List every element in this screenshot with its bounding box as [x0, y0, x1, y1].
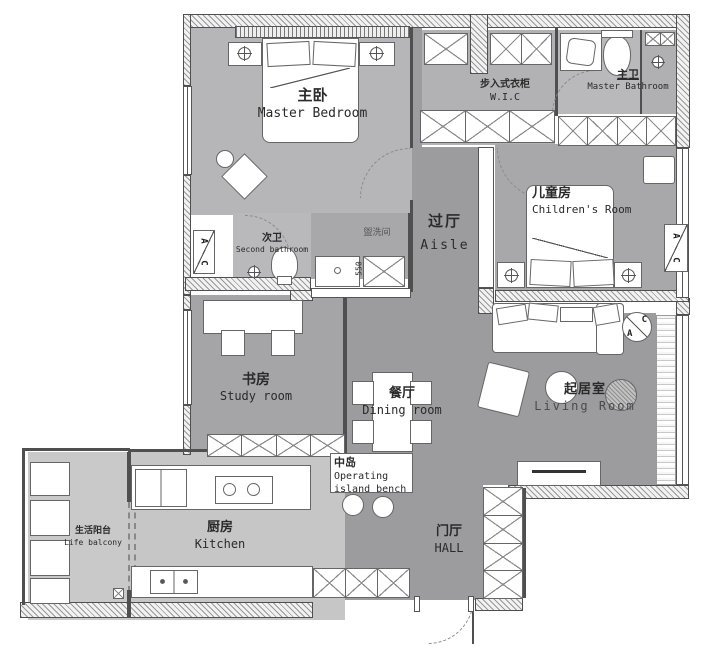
- aisle-label: 过厅 Aisle: [412, 212, 478, 254]
- shower-head-icon: [248, 266, 260, 278]
- hall-label: 门厅 HALL: [424, 524, 474, 556]
- bedroom-side-table: [216, 150, 234, 168]
- wall-shoecab-right: [523, 488, 526, 598]
- wall-childrens-left: [478, 147, 494, 288]
- kitchen-cabinet-bottom-right: [313, 568, 410, 598]
- study-room-label: 书房 Study room: [210, 371, 302, 405]
- burner-right: [247, 483, 260, 496]
- mbath-toilet-tank: [601, 30, 633, 38]
- master-bed-pillow-right: [312, 41, 356, 67]
- master-bed-blanket-fold: [270, 68, 350, 88]
- tv-screen: [532, 470, 586, 473]
- living-room-label: 起居室 Living Room: [530, 382, 640, 414]
- wall-bedroom-right-a: [410, 28, 413, 148]
- wic-cabinet-bottom: [420, 110, 555, 143]
- study-desk: [203, 300, 303, 334]
- childrens-wardrobe: [558, 116, 676, 146]
- wic-cabinet-top-right: [490, 33, 552, 65]
- wic-cabinet-top-left: [424, 33, 468, 65]
- mbath-shower-head-icon: [652, 56, 664, 68]
- island-stool-right: [372, 496, 394, 518]
- wall-living-bottom: [508, 485, 689, 499]
- ac-unit-right: A C: [664, 224, 688, 272]
- second-bath-toilet-tank: [277, 276, 292, 285]
- childrens-lamp-left-icon: [505, 269, 518, 282]
- wall-hall-bottom-right: [475, 598, 523, 611]
- mbath-sink-bowl: [565, 37, 596, 67]
- childrens-desk: [643, 156, 675, 184]
- floor-plan: 550 A C A C: [0, 0, 728, 672]
- sofa-pillow-3: [560, 307, 593, 322]
- study-cabinet: [207, 434, 345, 457]
- master-bathroom-label: 主卫 Master Bathroom: [572, 68, 684, 94]
- wic-label: 步入式衣柜 W.I.C: [440, 78, 570, 104]
- childrens-bed-blanket-fold: [532, 238, 608, 258]
- sofa-pillow-2: [527, 302, 559, 322]
- window-childrens-right: [676, 148, 689, 298]
- wall-balcony-left: [22, 450, 25, 605]
- washroom-cabinet: [363, 256, 405, 287]
- wall-washroom-right: [408, 213, 411, 292]
- dining-room-label: 餐厅 Dining room: [352, 386, 452, 418]
- entrance-post-right: [468, 596, 474, 612]
- island-label: 中岛 Operating island bench: [334, 456, 414, 496]
- wall-left-top: [183, 14, 191, 86]
- bedroom-blind: [235, 26, 410, 38]
- washbasin-drain: [334, 267, 341, 274]
- sink-drain-left: [160, 579, 165, 584]
- washer-3: [30, 578, 70, 604]
- wall-wic-column: [470, 14, 488, 74]
- childrens-pillow-left: [529, 259, 571, 287]
- entrance-post-left: [414, 596, 420, 612]
- burner-left: [223, 483, 236, 496]
- mbath-shelf: [645, 32, 675, 46]
- floor-drain: [113, 588, 124, 599]
- kitchen-label: 厨房 Kitchen: [178, 520, 262, 552]
- kitchen-sink: [150, 570, 198, 594]
- lamp-left-icon: [238, 47, 251, 60]
- wall-left-study-bot: [183, 405, 191, 455]
- wall-bottom-left: [20, 602, 313, 618]
- shoe-cabinet: [483, 487, 523, 599]
- study-chair-right: [271, 330, 295, 356]
- childrens-room-label: 儿童房 Children's Room: [532, 186, 650, 217]
- life-balcony-label: 生活阳台 Life balcony: [56, 526, 130, 548]
- dim-550: 550: [355, 261, 364, 275]
- washroom-label: 盥洗间: [350, 228, 404, 240]
- lamp-right-icon: [370, 47, 383, 60]
- childrens-pillow-right: [572, 259, 614, 287]
- tv-bench: [517, 461, 601, 486]
- island-stool-left: [342, 494, 364, 516]
- living-curtain: [656, 315, 676, 485]
- master-bedroom-label: 主卧 Master Bedroom: [240, 86, 385, 122]
- wall-child-living: [495, 290, 689, 302]
- window-living-right: [676, 315, 689, 485]
- wall-left-study-top: [183, 295, 191, 310]
- fridge: [135, 469, 187, 507]
- wall-balcony-top: [22, 448, 130, 451]
- window-study-left: [183, 310, 192, 405]
- dining-chair-bl: [352, 420, 374, 444]
- ac-unit-left: A C: [193, 230, 215, 274]
- second-bathroom-label: 次卫 Second bathroom: [228, 232, 316, 255]
- window-bedroom-left: [183, 86, 192, 175]
- study-chair-left: [221, 330, 245, 356]
- childrens-lamp-right-icon: [622, 269, 635, 282]
- sink-drain-right: [183, 579, 188, 584]
- ac-symbol-living: C A: [622, 312, 652, 342]
- balcony-cabinet-top: [30, 462, 70, 496]
- dining-chair-br: [410, 420, 432, 444]
- washroom-sill: [311, 288, 411, 298]
- master-bed-pillow-left: [266, 41, 310, 67]
